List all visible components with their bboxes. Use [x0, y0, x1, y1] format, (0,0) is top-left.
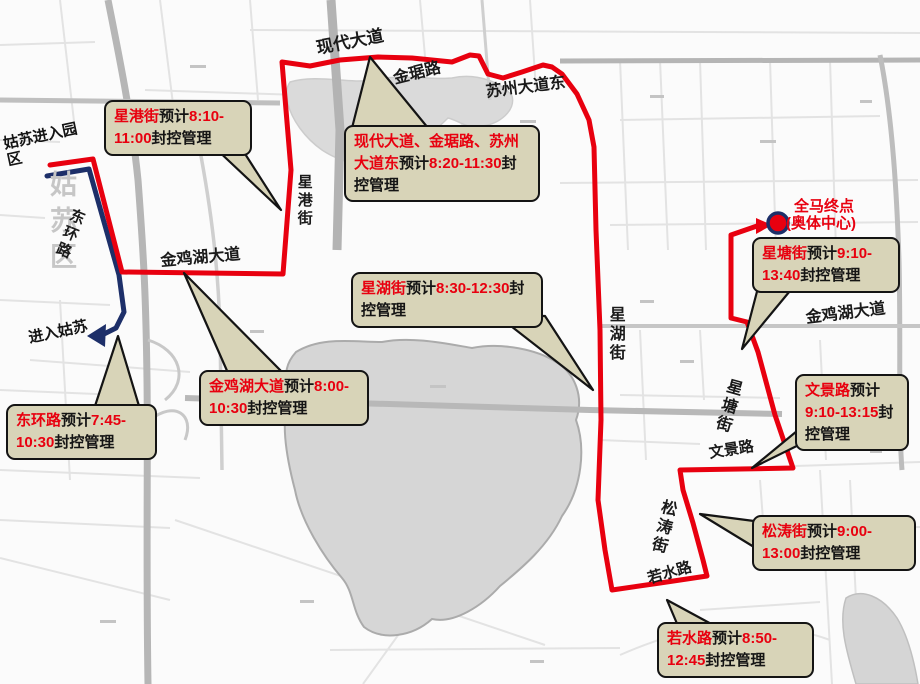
- callout-estimate: 预计: [807, 523, 837, 540]
- finish-label-line1: 全马终点: [794, 199, 854, 215]
- callout-xingtang: 星塘街预计9:10-13:40封控管理: [752, 237, 900, 293]
- callout-road: 星塘街: [762, 245, 807, 262]
- callout-estimate: 预计: [159, 108, 189, 125]
- callout-xinghu: 星湖街预计8:30-12:30封控管理: [351, 272, 543, 328]
- callout-action: 封控管理: [800, 267, 860, 284]
- callout-action: 封控管理: [705, 652, 765, 669]
- callout-estimate: 预计: [712, 630, 742, 647]
- callout-estimate: 预计: [399, 155, 429, 172]
- entry-arrow-icon: [87, 324, 106, 347]
- callout-donghuan: 东环路预计7:45-10:30封控管理: [6, 404, 157, 460]
- callout-action: 封控管理: [800, 545, 860, 562]
- road-closure-map: 姑苏区 姑苏进入园区 进入姑苏 现代大道 金琚路 苏州大道东 星港街 东环路 金…: [0, 0, 920, 684]
- callout-ruoshui: 若水路预计8:50-12:45封控管理: [657, 622, 814, 678]
- callout-time: 9:10-13:15: [805, 404, 878, 421]
- callout-wenjing: 文景路预计9:10-13:15封控管理: [795, 374, 909, 451]
- callout-action: 封控管理: [152, 130, 212, 147]
- callout-estimate: 预计: [406, 280, 436, 297]
- callout-action: 封控管理: [247, 400, 307, 417]
- callout-jinjihu: 金鸡湖大道预计8:00-10:30封控管理: [199, 370, 369, 426]
- callout-road: 若水路: [667, 630, 712, 647]
- callout-road: 松涛街: [762, 523, 807, 540]
- callout-road: 星港街: [114, 108, 159, 125]
- callout-estimate: 预计: [284, 378, 314, 395]
- road-label-xinghu: 星湖街: [606, 306, 623, 363]
- callout-road: 东环路: [16, 412, 61, 429]
- callout-estimate: 预计: [850, 382, 880, 399]
- callout-xinggang: 星港街预计8:10-11:00封控管理: [104, 100, 252, 156]
- callout-road: 文景路: [805, 382, 850, 399]
- road-label-xinggang: 星港街: [296, 174, 312, 228]
- callout-road: 金鸡湖大道: [209, 378, 284, 395]
- finish-label-line2: (奥体中心): [786, 216, 856, 232]
- callout-xiandai-jinju-suzhoudadong: 现代大道、金琚路、苏州大道东预计8:20-11:30封控管理: [344, 125, 540, 202]
- callout-estimate: 预计: [61, 412, 91, 429]
- finish-marker-icon: [768, 213, 788, 233]
- callout-road: 星湖街: [361, 280, 406, 297]
- callout-estimate: 预计: [807, 245, 837, 262]
- callout-time: 8:30-12:30: [436, 280, 509, 297]
- dushu-lake-corner: [843, 594, 918, 684]
- callout-songtao: 松涛街预计9:00-13:00封控管理: [752, 515, 916, 571]
- callout-time: 8:20-11:30: [429, 155, 502, 172]
- callout-action: 封控管理: [54, 434, 114, 451]
